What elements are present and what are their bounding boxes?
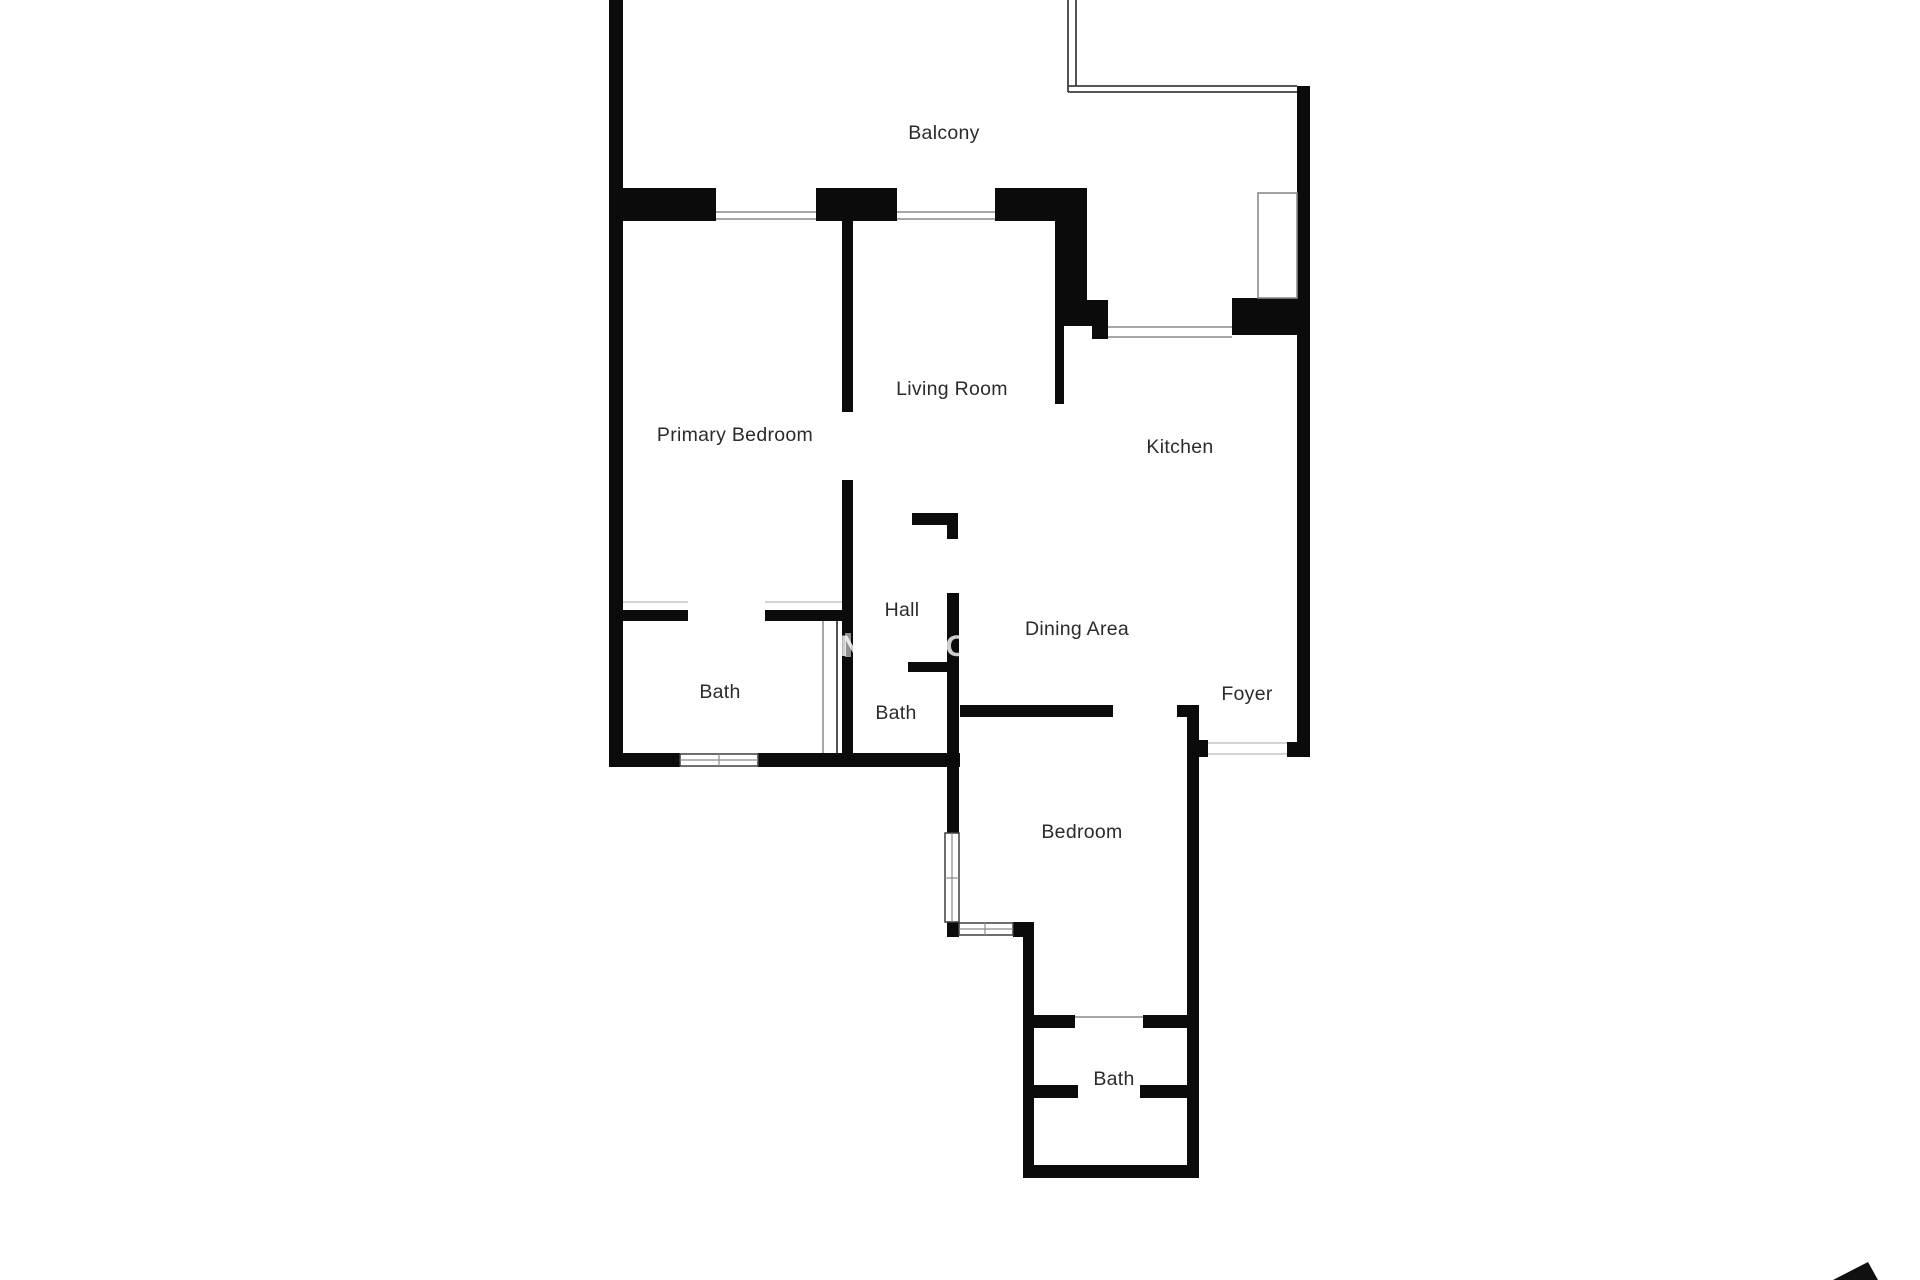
wall-bedroom-living-lower bbox=[842, 480, 853, 753]
wall-balcony-segment-2 bbox=[816, 188, 897, 221]
windows bbox=[680, 754, 1013, 935]
room-label-foyer: Foyer bbox=[1221, 683, 1273, 705]
wall-bath-bedroom-divider2-right bbox=[1140, 1085, 1187, 1098]
wall-bedroom-top bbox=[960, 705, 1113, 717]
wall-left-exterior bbox=[609, 0, 623, 767]
north-arrow-icon bbox=[1833, 1262, 1878, 1280]
room-label-dining-area: Dining Area bbox=[1025, 618, 1129, 640]
wall-bedroom-right bbox=[1187, 705, 1199, 1178]
wall-bath-hall-top-stub bbox=[908, 662, 950, 672]
wall-bedroom-living-upper bbox=[842, 220, 853, 412]
wall-bath-bedroom-divider1-right bbox=[1143, 1015, 1187, 1028]
wall-foyer-nub bbox=[1199, 740, 1208, 757]
bedroom-window-horizontal bbox=[959, 923, 1013, 935]
wall-bath-bedroom-divider2-left bbox=[1034, 1085, 1078, 1098]
wall-hall-stub-horizontal bbox=[912, 513, 958, 525]
watermark: N O bbox=[840, 630, 969, 663]
watermark-letter-n: N bbox=[840, 630, 862, 663]
wall-bath-primary-top-left bbox=[623, 610, 688, 621]
wall-bath-primary-top-right bbox=[765, 610, 842, 621]
wall-bath-bottom-left bbox=[609, 753, 680, 767]
room-labels: Balcony Primary Bedroom Living Room Kitc… bbox=[657, 122, 1273, 1090]
wall-bath-bottom-right bbox=[758, 753, 960, 767]
bedroom-window-vertical bbox=[945, 833, 959, 922]
wall-bath-bedroom-left bbox=[1023, 937, 1034, 1178]
room-label-hall: Hall bbox=[885, 599, 920, 621]
room-label-bath-hall: Bath bbox=[875, 702, 916, 724]
wall-kitchen-foot bbox=[1287, 742, 1310, 757]
wall-kitchen-stub bbox=[1232, 298, 1310, 335]
room-label-primary-bedroom: Primary Bedroom bbox=[657, 424, 813, 446]
room-label-bath-primary: Bath bbox=[699, 681, 740, 703]
room-label-balcony: Balcony bbox=[908, 122, 979, 144]
room-label-bedroom: Bedroom bbox=[1041, 821, 1122, 843]
wall-bedroom-window-corner bbox=[947, 922, 959, 937]
wall-living-right-foot bbox=[1055, 300, 1108, 326]
wall-hall-stub-vertical bbox=[947, 525, 958, 539]
wall-balcony-segment-1 bbox=[609, 188, 716, 221]
bath-primary-window bbox=[680, 754, 758, 766]
wall-living-right-main bbox=[1055, 220, 1087, 302]
floorplan-canvas: Balcony Primary Bedroom Living Room Kitc… bbox=[0, 0, 1920, 1280]
watermark-letter-o: O bbox=[945, 630, 968, 663]
walls bbox=[609, 0, 1310, 1178]
kitchen-counter-outline bbox=[1258, 193, 1297, 298]
wall-hall-dining-divider bbox=[947, 593, 959, 833]
wall-living-right-step bbox=[1092, 326, 1108, 339]
room-label-living-room: Living Room bbox=[896, 378, 1008, 400]
wall-living-right-narrow bbox=[1055, 326, 1064, 404]
wall-kitchen-right bbox=[1297, 86, 1310, 757]
wall-bedroom-window-corner-2 bbox=[1013, 922, 1034, 937]
wall-bath-bedroom-divider1-left bbox=[1034, 1015, 1075, 1028]
wall-balcony-segment-3 bbox=[995, 188, 1087, 221]
wall-bath-bedroom-bottom bbox=[1023, 1165, 1199, 1178]
room-label-bath-bedroom: Bath bbox=[1093, 1068, 1134, 1090]
room-label-kitchen: Kitchen bbox=[1146, 436, 1213, 458]
